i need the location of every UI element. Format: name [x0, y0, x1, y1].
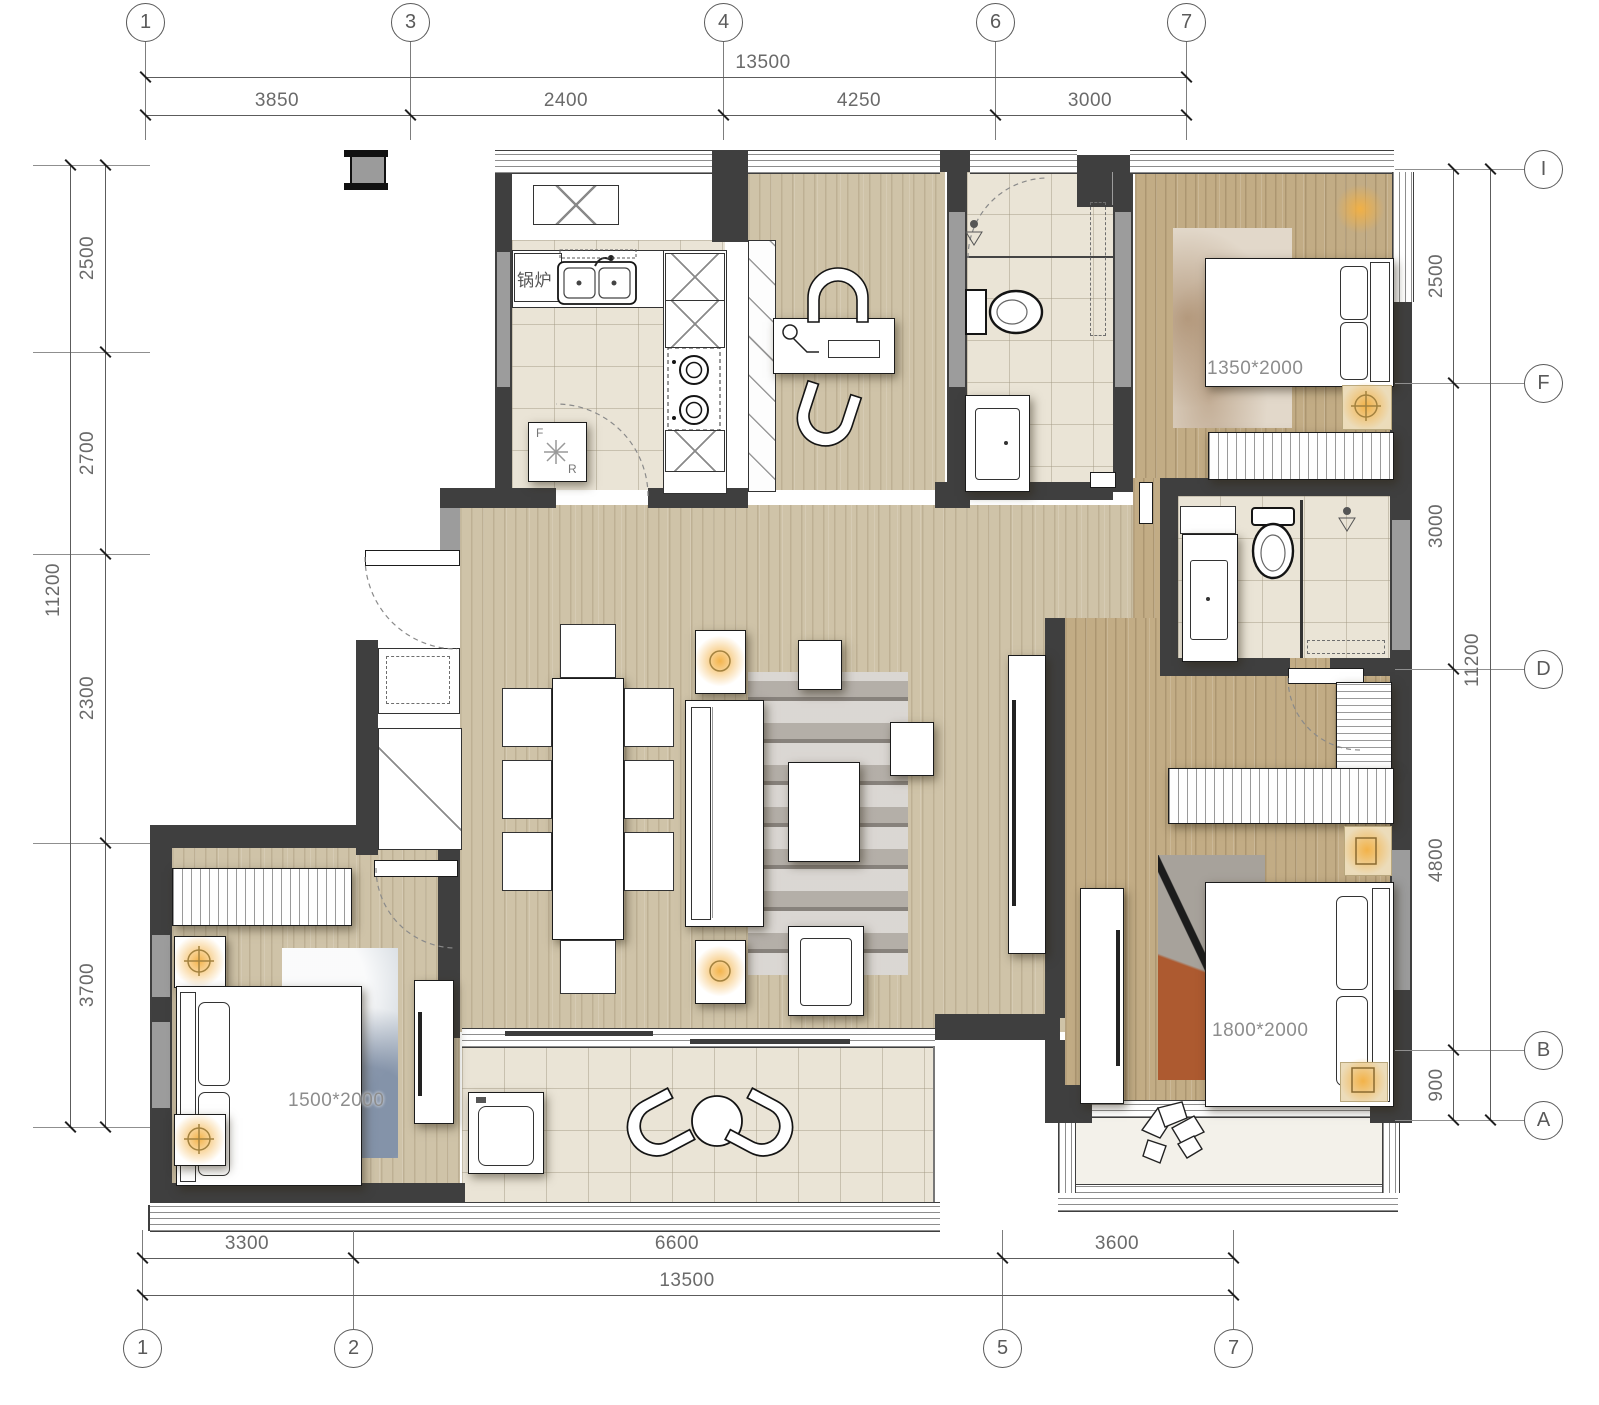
- bedroom2-pillow: [1340, 266, 1368, 320]
- dim-left-seg: 2500: [77, 213, 99, 303]
- dim-line: [145, 77, 1186, 78]
- dim-line: [145, 115, 1186, 116]
- fridge-label-f: F: [536, 426, 543, 440]
- sofa-back-cushions: [691, 707, 711, 920]
- grid-bubble-bottom: 5: [983, 1329, 1022, 1368]
- kitchen-window-cabinet: [533, 185, 619, 225]
- entry-door-leaf: [365, 550, 460, 566]
- wall: [1045, 618, 1065, 1018]
- balcony-se-side: [1058, 1123, 1076, 1193]
- ceiling-glow: [1334, 184, 1386, 234]
- dim-left-seg: 3700: [77, 940, 99, 1030]
- grid-stem: [410, 41, 411, 140]
- column-cap: [344, 150, 388, 157]
- kitchen-unit-x3: [665, 430, 725, 472]
- bedroom1-wardrobe: [172, 868, 352, 926]
- side-table-a: [798, 640, 842, 690]
- master-side-cabinet: [1336, 682, 1392, 770]
- bath1-faucet-dot: [1004, 441, 1008, 445]
- grid-stem: [145, 41, 146, 140]
- grid-bubble-top: 3: [391, 3, 430, 42]
- grid-stem: [995, 41, 996, 140]
- dining-table: [552, 678, 624, 940]
- grid-stem: [1002, 1230, 1003, 1329]
- column-body: [350, 157, 386, 183]
- glass-partition: [748, 240, 776, 492]
- kitchen-unit-x1: [665, 253, 725, 301]
- wall: [440, 488, 556, 508]
- wall: [1160, 478, 1396, 496]
- fridge-label-r: R: [568, 462, 577, 476]
- master-wardrobe: [1168, 768, 1394, 824]
- grid-bubble-top: 1: [126, 3, 165, 42]
- dim-line: [142, 1295, 1233, 1296]
- grid-bubble-top: 7: [1167, 3, 1206, 42]
- ensuite-faucet-dot: [1206, 597, 1210, 601]
- balcony-se-floor: [1072, 1115, 1382, 1187]
- grid-bubble-bottom: 7: [1214, 1329, 1253, 1368]
- wall: [152, 1022, 170, 1108]
- grid-stem: [1233, 1230, 1234, 1329]
- wall: [1392, 520, 1410, 650]
- master-tv: [1116, 930, 1120, 1066]
- dim-line: [1453, 169, 1454, 1120]
- dining-chair: [624, 688, 674, 747]
- balcony-sw-south-band: [150, 1202, 940, 1232]
- window-band: [495, 150, 712, 174]
- sofa-seat-line: [712, 707, 713, 918]
- window-band: [970, 150, 1077, 174]
- window-band: [1392, 172, 1414, 302]
- coffee-table: [788, 762, 860, 862]
- grid-bubble-right: D: [1524, 650, 1563, 689]
- entry-cabinet-dashline: [386, 656, 450, 704]
- grid-stem: [1186, 41, 1187, 140]
- bedroom1-tv: [418, 1012, 422, 1096]
- bedroom2-door-leaf: [1139, 482, 1153, 524]
- wall: [356, 640, 378, 855]
- balcony-se-side: [1382, 1123, 1400, 1193]
- desk-paper: [828, 340, 880, 358]
- dim-line: [105, 165, 106, 1127]
- boiler-label: 锅炉: [517, 266, 552, 291]
- dining-chair: [624, 760, 674, 819]
- grid-bubble-top: 6: [976, 3, 1015, 42]
- dining-chair: [624, 832, 674, 891]
- lamp-glow: [694, 944, 746, 998]
- window-band: [1130, 150, 1394, 174]
- hall-door-leaf: [1090, 472, 1116, 488]
- dim-line: [1490, 169, 1491, 1120]
- grid-bubble-right: B: [1524, 1031, 1563, 1070]
- lamp-glow: [694, 634, 746, 688]
- dim-bottom-seg: 3600: [1072, 1233, 1162, 1255]
- dim-top-seg: 2400: [521, 90, 611, 112]
- living-tv: [1012, 700, 1016, 906]
- dim-left-total: 11200: [43, 545, 65, 635]
- dim-right-seg: 3000: [1426, 481, 1448, 571]
- bedroom2-bed-label: 1350*2000: [1207, 358, 1303, 380]
- grid-bubble-right: F: [1524, 364, 1563, 403]
- dim-bottom-total: 13500: [642, 1270, 732, 1292]
- grid-bubble-right: A: [1524, 1101, 1563, 1140]
- bedroom1-door-leaf: [374, 860, 458, 877]
- window-band: [748, 150, 940, 174]
- master-bed-label: 1800*2000: [1212, 1020, 1308, 1042]
- dim-right-total: 11200: [1462, 615, 1484, 705]
- washer-panel: [476, 1097, 486, 1103]
- dim-top-seg: 3000: [1045, 90, 1135, 112]
- wall: [497, 252, 510, 387]
- master-pillow: [1336, 896, 1368, 990]
- wall: [935, 1014, 1060, 1040]
- grid-bubble-top: 4: [704, 3, 743, 42]
- bedroom2-pillow: [1340, 322, 1368, 380]
- balcony-sw-edge: [933, 1046, 935, 1202]
- dim-right-seg: 4800: [1426, 815, 1448, 905]
- dim-top-total: 13500: [718, 52, 808, 74]
- dim-top-seg: 3850: [232, 90, 322, 112]
- wall: [1392, 850, 1410, 990]
- lamp-glow: [1338, 1058, 1388, 1104]
- kitchen-unit-x2: [665, 300, 725, 348]
- balcony-se-south-band: [1058, 1184, 1398, 1212]
- wall: [1045, 1040, 1065, 1090]
- lamp-glow: [172, 934, 226, 988]
- armchair-seat: [800, 938, 852, 1006]
- grid-bubble-bottom: 2: [334, 1329, 373, 1368]
- sliding-door-leaf: [505, 1031, 653, 1036]
- dim-left-seg: 2300: [77, 653, 99, 743]
- dining-chair: [502, 832, 552, 891]
- bedroom2-wardrobe: [1208, 432, 1394, 480]
- dining-chair: [502, 760, 552, 819]
- shower-door: [1307, 640, 1385, 654]
- lamp-glow: [1340, 382, 1392, 430]
- wall: [949, 212, 965, 387]
- column-cap: [344, 183, 388, 190]
- wall: [152, 935, 170, 997]
- grid-stem: [353, 1230, 354, 1329]
- grid-bubble-bottom: 1: [123, 1329, 162, 1368]
- dim-line: [70, 165, 71, 1127]
- ensuite-top-unit: [1180, 506, 1236, 534]
- dim-left-seg: 2700: [77, 408, 99, 498]
- shower-glass: [1300, 500, 1303, 658]
- side-table-b: [890, 722, 934, 776]
- wall: [1160, 496, 1178, 676]
- lamp-glow: [1342, 824, 1392, 876]
- floorplan-canvas: 锅炉 F R 1350*2000 1800*2000: [0, 0, 1599, 1405]
- dining-chair: [560, 940, 616, 994]
- dim-bottom-seg: 3300: [202, 1233, 292, 1255]
- dim-line: [142, 1258, 1233, 1259]
- washer-drum: [478, 1106, 534, 1166]
- sliding-door-leaf: [690, 1039, 850, 1044]
- dining-chair: [560, 624, 616, 678]
- grid-bubble-right: I: [1524, 150, 1563, 189]
- wall: [940, 150, 970, 172]
- grid-stem: [142, 1230, 143, 1329]
- entry-closet: [378, 728, 462, 850]
- bedroom1-bed-label: 1500*2000: [288, 1090, 384, 1112]
- dim-right-seg: 2500: [1426, 231, 1448, 321]
- lamp-glow: [172, 1112, 226, 1166]
- bath1-basin: [975, 408, 1020, 480]
- wall: [1115, 212, 1131, 387]
- dining-chair: [502, 688, 552, 747]
- dim-top-seg: 4250: [814, 90, 904, 112]
- bedroom1-pillow: [198, 1002, 230, 1086]
- dim-right-seg: 900: [1426, 1040, 1448, 1130]
- wall: [712, 150, 748, 242]
- bath1-pocket-door: [1090, 202, 1106, 336]
- dim-bottom-seg: 6600: [632, 1233, 722, 1255]
- bedroom2-headboard: [1370, 262, 1390, 382]
